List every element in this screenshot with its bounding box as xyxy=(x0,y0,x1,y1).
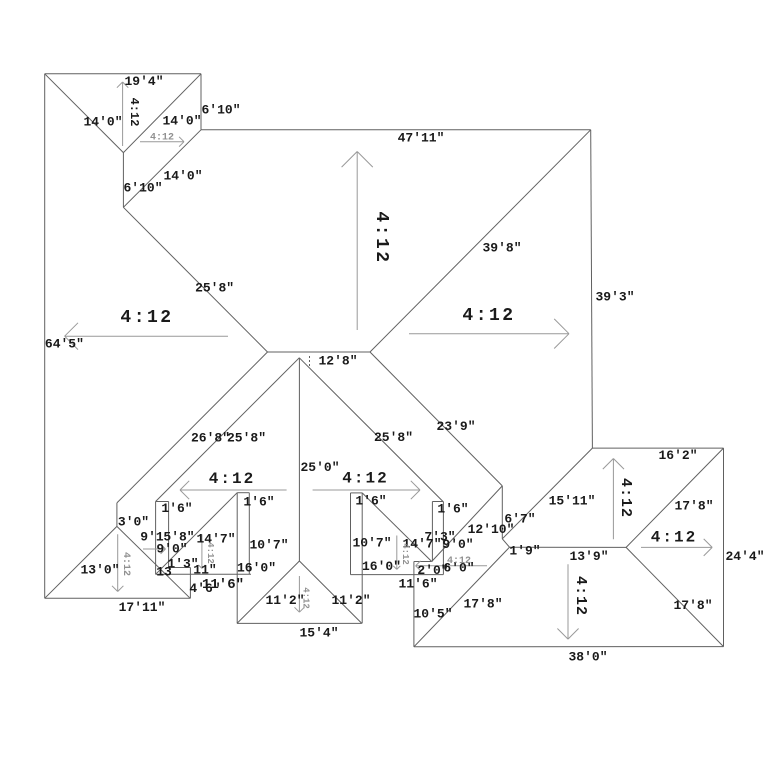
svg-text:4:12: 4:12 xyxy=(120,308,173,328)
svg-text:25'8": 25'8" xyxy=(227,431,266,446)
svg-text:38'0": 38'0" xyxy=(568,650,607,665)
svg-text:25'0": 25'0" xyxy=(300,460,339,475)
svg-text:13: 13 xyxy=(156,565,172,580)
svg-text:4:12: 4:12 xyxy=(572,576,589,616)
svg-text:4:12: 4:12 xyxy=(400,543,410,565)
svg-text:4:12: 4:12 xyxy=(342,470,388,488)
svg-text:17'8": 17'8" xyxy=(463,597,502,612)
svg-text:4:12: 4:12 xyxy=(150,133,174,144)
svg-text:4:12: 4:12 xyxy=(617,478,634,518)
svg-text:4:12: 4:12 xyxy=(371,211,391,264)
svg-text:17'8": 17'8" xyxy=(674,499,713,514)
svg-text:1'6": 1'6" xyxy=(437,502,468,517)
svg-text:1'6": 1'6" xyxy=(243,495,274,510)
svg-text:14'0": 14'0" xyxy=(163,169,202,184)
svg-text:14'7": 14'7" xyxy=(196,532,235,547)
svg-text:12'8": 12'8" xyxy=(318,354,357,369)
svg-text:23'9": 23'9" xyxy=(436,419,475,434)
svg-text:6'10": 6'10" xyxy=(123,181,162,196)
svg-text:16'2": 16'2" xyxy=(658,448,697,463)
svg-text:4:12: 4:12 xyxy=(205,542,215,564)
svg-text:26'8": 26'8" xyxy=(191,431,230,446)
svg-text:47'11": 47'11" xyxy=(398,131,445,146)
svg-text:39'3": 39'3" xyxy=(595,290,634,305)
svg-text:1'6": 1'6" xyxy=(161,501,192,516)
svg-text:3'0": 3'0" xyxy=(118,515,149,530)
svg-text:4:12: 4:12 xyxy=(447,556,471,567)
svg-text:11'6": 11'6" xyxy=(398,577,437,592)
svg-text:19'4": 19'4" xyxy=(124,74,163,89)
svg-text:14'0": 14'0" xyxy=(162,114,201,129)
svg-text:9'0": 9'0" xyxy=(156,542,187,557)
svg-text:10'5": 10'5" xyxy=(413,607,452,622)
svg-text:16'0": 16'0" xyxy=(362,559,401,574)
svg-text:6'10": 6'10" xyxy=(201,103,240,118)
svg-text:10'7": 10'7" xyxy=(249,538,288,553)
svg-text:15'4": 15'4" xyxy=(299,626,338,641)
svg-text:24'4": 24'4" xyxy=(725,549,764,564)
svg-text:9'0": 9'0" xyxy=(442,537,473,552)
svg-text:1'9": 1'9" xyxy=(509,544,540,559)
svg-text:4:12: 4:12 xyxy=(462,306,515,326)
svg-text:17'11": 17'11" xyxy=(119,600,166,615)
svg-text:14'0": 14'0" xyxy=(83,115,122,130)
svg-text:11": 11" xyxy=(193,563,216,578)
svg-text:4'6": 4'6" xyxy=(189,581,220,596)
svg-text:64'5": 64'5" xyxy=(45,337,84,352)
svg-text:17'8": 17'8" xyxy=(673,598,712,613)
svg-text:4:12: 4:12 xyxy=(209,470,255,488)
svg-text:25'8": 25'8" xyxy=(374,430,413,445)
svg-text:25'8": 25'8" xyxy=(195,281,234,296)
svg-text:13'9": 13'9" xyxy=(569,549,608,564)
svg-text:11'2": 11'2" xyxy=(265,593,304,608)
svg-text:4:12: 4:12 xyxy=(651,529,697,547)
svg-text:13'0": 13'0" xyxy=(80,563,119,578)
svg-text:15'11": 15'11" xyxy=(549,494,596,509)
svg-text:1'6": 1'6" xyxy=(355,494,386,509)
svg-text:11'2": 11'2" xyxy=(331,593,370,608)
svg-text:4:12: 4:12 xyxy=(127,98,141,127)
svg-text:4:12: 4:12 xyxy=(120,552,131,576)
svg-text:10'7": 10'7" xyxy=(352,536,391,551)
svg-text:16'0": 16'0" xyxy=(237,561,276,576)
svg-text:39'8": 39'8" xyxy=(482,241,521,256)
svg-text:6'7": 6'7" xyxy=(504,512,535,527)
svg-text:4:12: 4:12 xyxy=(301,587,311,609)
